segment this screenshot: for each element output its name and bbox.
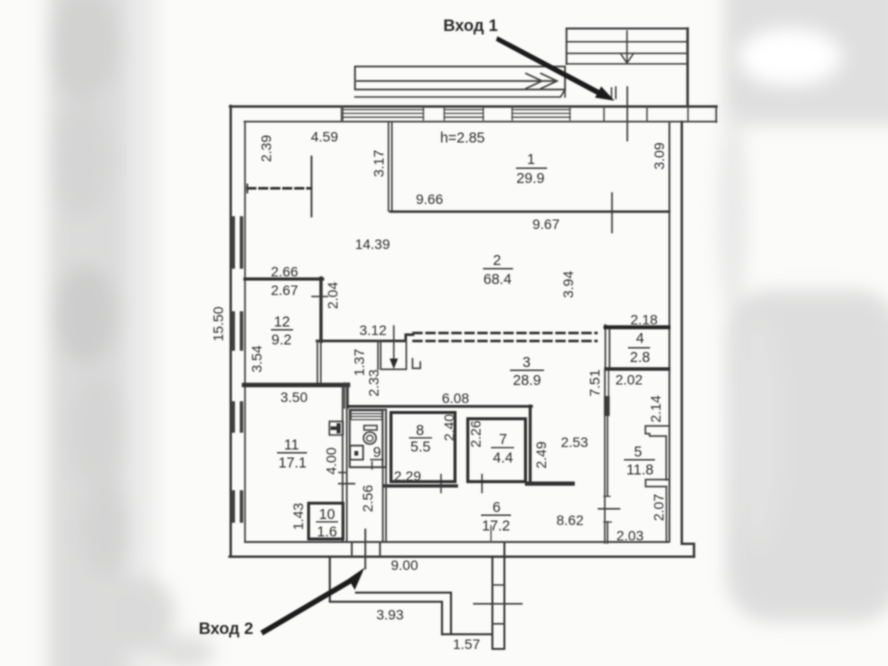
- svg-text:2.49: 2.49: [533, 441, 549, 468]
- svg-text:Вход 1: Вход 1: [443, 17, 498, 35]
- svg-text:2.29: 2.29: [394, 468, 421, 484]
- svg-text:2.04: 2.04: [325, 282, 341, 309]
- svg-text:3.93: 3.93: [376, 607, 403, 623]
- svg-text:h=2.85: h=2.85: [440, 131, 485, 147]
- svg-text:28.9: 28.9: [513, 373, 541, 389]
- svg-text:3: 3: [522, 355, 530, 371]
- svg-text:15.50: 15.50: [210, 306, 226, 341]
- svg-text:2.56: 2.56: [360, 485, 376, 512]
- svg-text:1.6: 1.6: [317, 525, 337, 541]
- svg-text:9.66: 9.66: [416, 191, 443, 207]
- svg-text:68.4: 68.4: [483, 272, 511, 288]
- svg-text:2.39: 2.39: [258, 135, 274, 162]
- svg-text:4.00: 4.00: [323, 447, 339, 474]
- svg-text:17.1: 17.1: [278, 456, 306, 472]
- svg-text:2.14: 2.14: [648, 395, 664, 422]
- svg-text:8: 8: [416, 423, 424, 439]
- svg-text:3.17: 3.17: [371, 150, 387, 177]
- svg-text:2.07: 2.07: [651, 494, 667, 521]
- svg-text:1.57: 1.57: [453, 636, 480, 652]
- svg-text:2.66: 2.66: [271, 264, 298, 280]
- svg-text:2.02: 2.02: [615, 372, 642, 388]
- svg-text:9.00: 9.00: [391, 557, 418, 573]
- svg-text:Вход 2: Вход 2: [199, 620, 254, 638]
- svg-text:6.08: 6.08: [442, 390, 469, 406]
- svg-text:29.9: 29.9: [516, 171, 544, 187]
- svg-text:2.26: 2.26: [468, 420, 484, 447]
- svg-text:2.53: 2.53: [561, 434, 588, 450]
- svg-text:6: 6: [492, 500, 500, 516]
- svg-text:2.03: 2.03: [616, 528, 643, 544]
- svg-text:2.40: 2.40: [441, 414, 457, 441]
- svg-text:4.59: 4.59: [311, 129, 338, 145]
- svg-text:17.2: 17.2: [482, 519, 510, 535]
- svg-text:2: 2: [493, 253, 501, 269]
- svg-text:3.54: 3.54: [249, 345, 265, 372]
- svg-text:14.39: 14.39: [355, 236, 390, 252]
- svg-text:3.09: 3.09: [651, 142, 667, 169]
- svg-text:8.62: 8.62: [556, 512, 583, 528]
- svg-text:9: 9: [373, 445, 381, 461]
- svg-text:2.18: 2.18: [630, 312, 657, 328]
- svg-text:3.94: 3.94: [560, 271, 576, 298]
- svg-text:7: 7: [499, 432, 507, 448]
- svg-text:10: 10: [319, 507, 335, 523]
- svg-text:11.8: 11.8: [626, 463, 653, 479]
- svg-text:4.4: 4.4: [493, 451, 513, 467]
- svg-text:5.5: 5.5: [410, 440, 430, 456]
- svg-text:9.67: 9.67: [532, 216, 559, 232]
- svg-text:2.8: 2.8: [630, 350, 650, 366]
- svg-text:11: 11: [284, 438, 299, 454]
- svg-text:2.33: 2.33: [366, 369, 382, 396]
- svg-text:2.67: 2.67: [271, 282, 298, 298]
- svg-text:3.12: 3.12: [359, 322, 386, 338]
- svg-text:1: 1: [527, 152, 535, 168]
- svg-text:12: 12: [274, 315, 290, 331]
- svg-text:3.50: 3.50: [280, 389, 307, 405]
- svg-text:7.51: 7.51: [587, 369, 603, 396]
- svg-text:5: 5: [634, 445, 642, 461]
- svg-text:9.2: 9.2: [271, 333, 291, 349]
- svg-text:4: 4: [636, 331, 644, 347]
- svg-text:1.43: 1.43: [290, 503, 306, 530]
